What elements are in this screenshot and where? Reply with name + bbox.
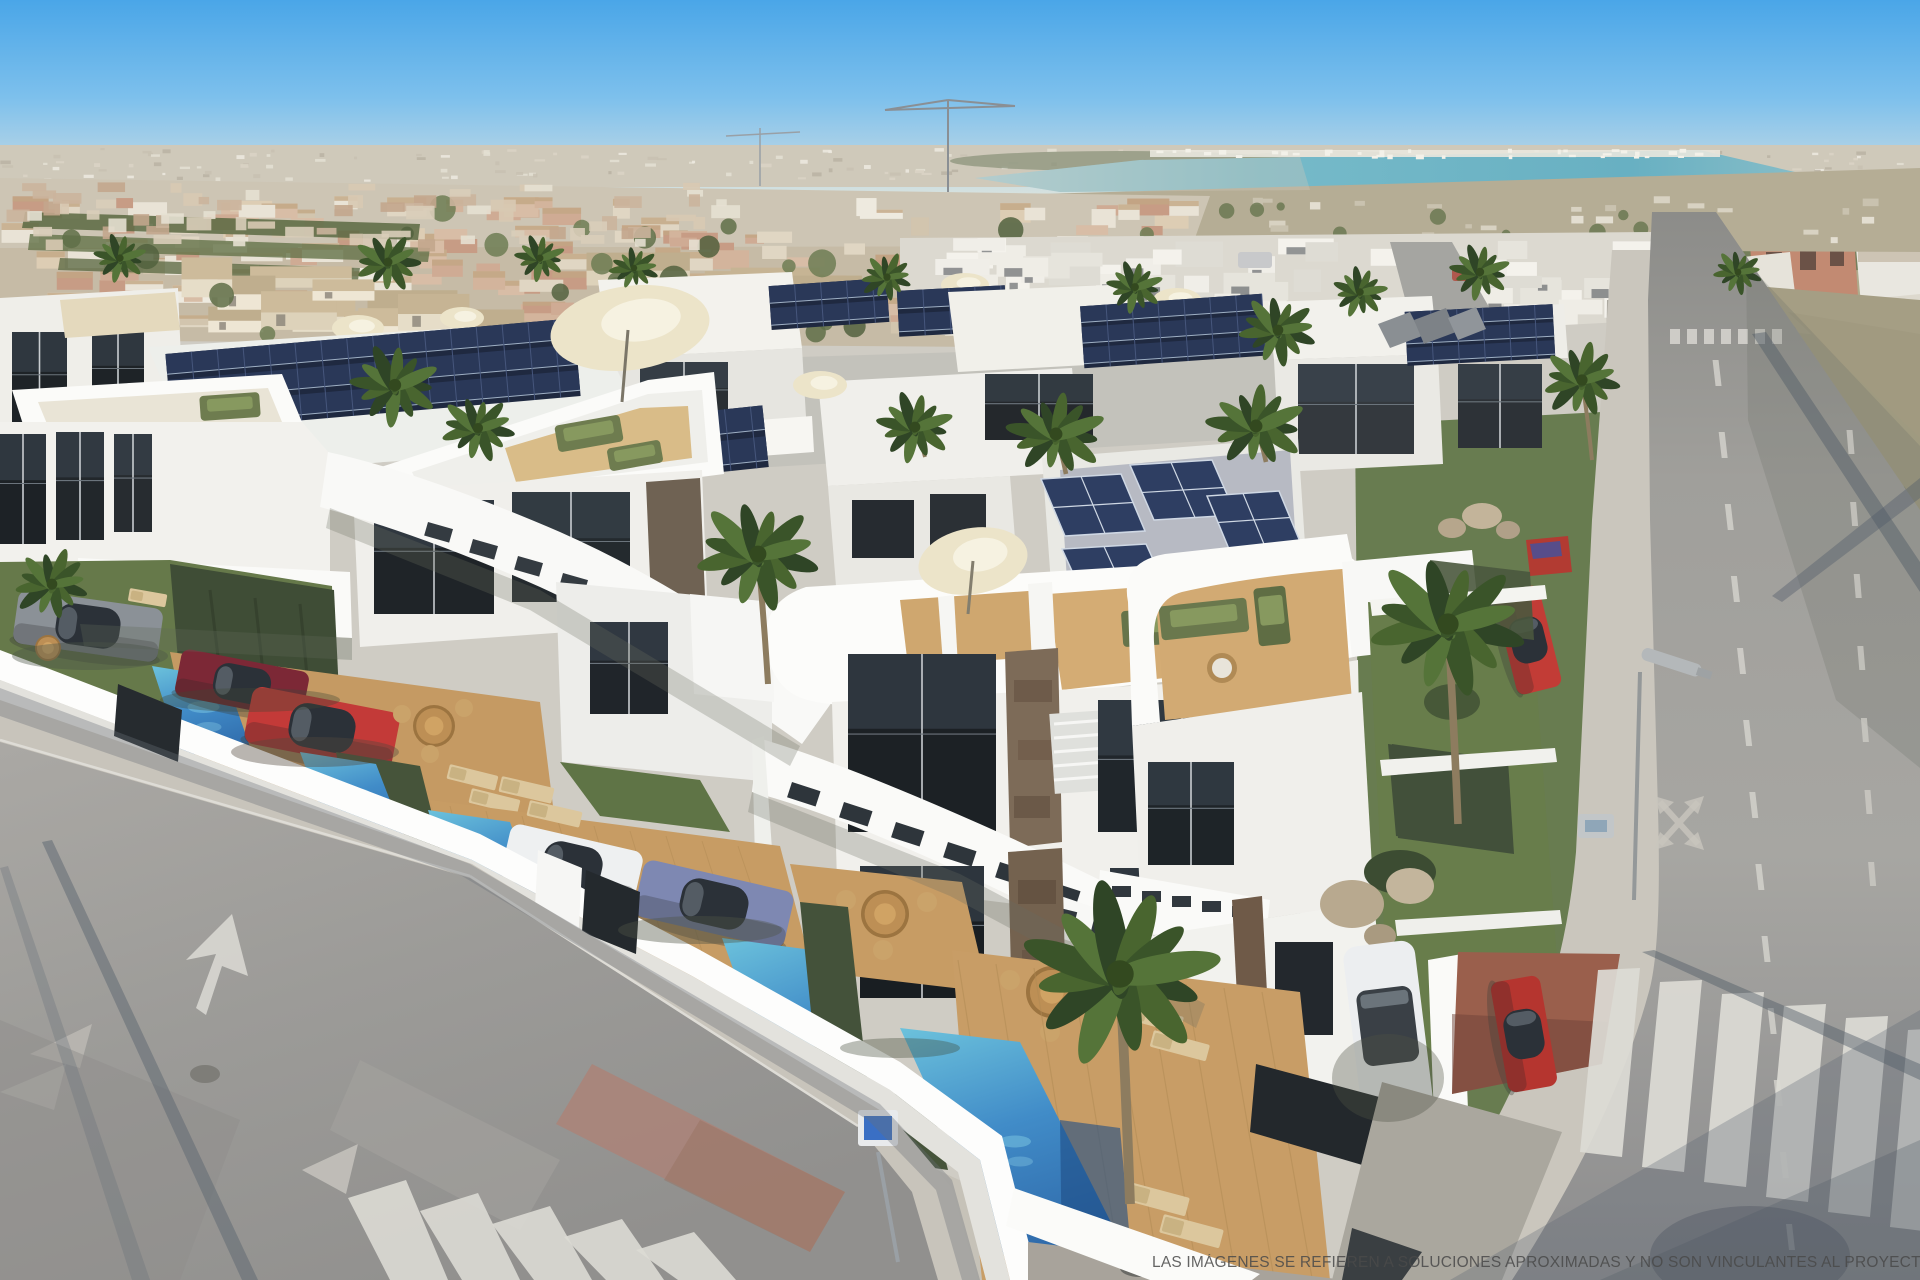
svg-text:LAS IMÁGENES SE REFIEREN A SOL: LAS IMÁGENES SE REFIEREN A SOLUCIONES AP… (1152, 1254, 1920, 1271)
